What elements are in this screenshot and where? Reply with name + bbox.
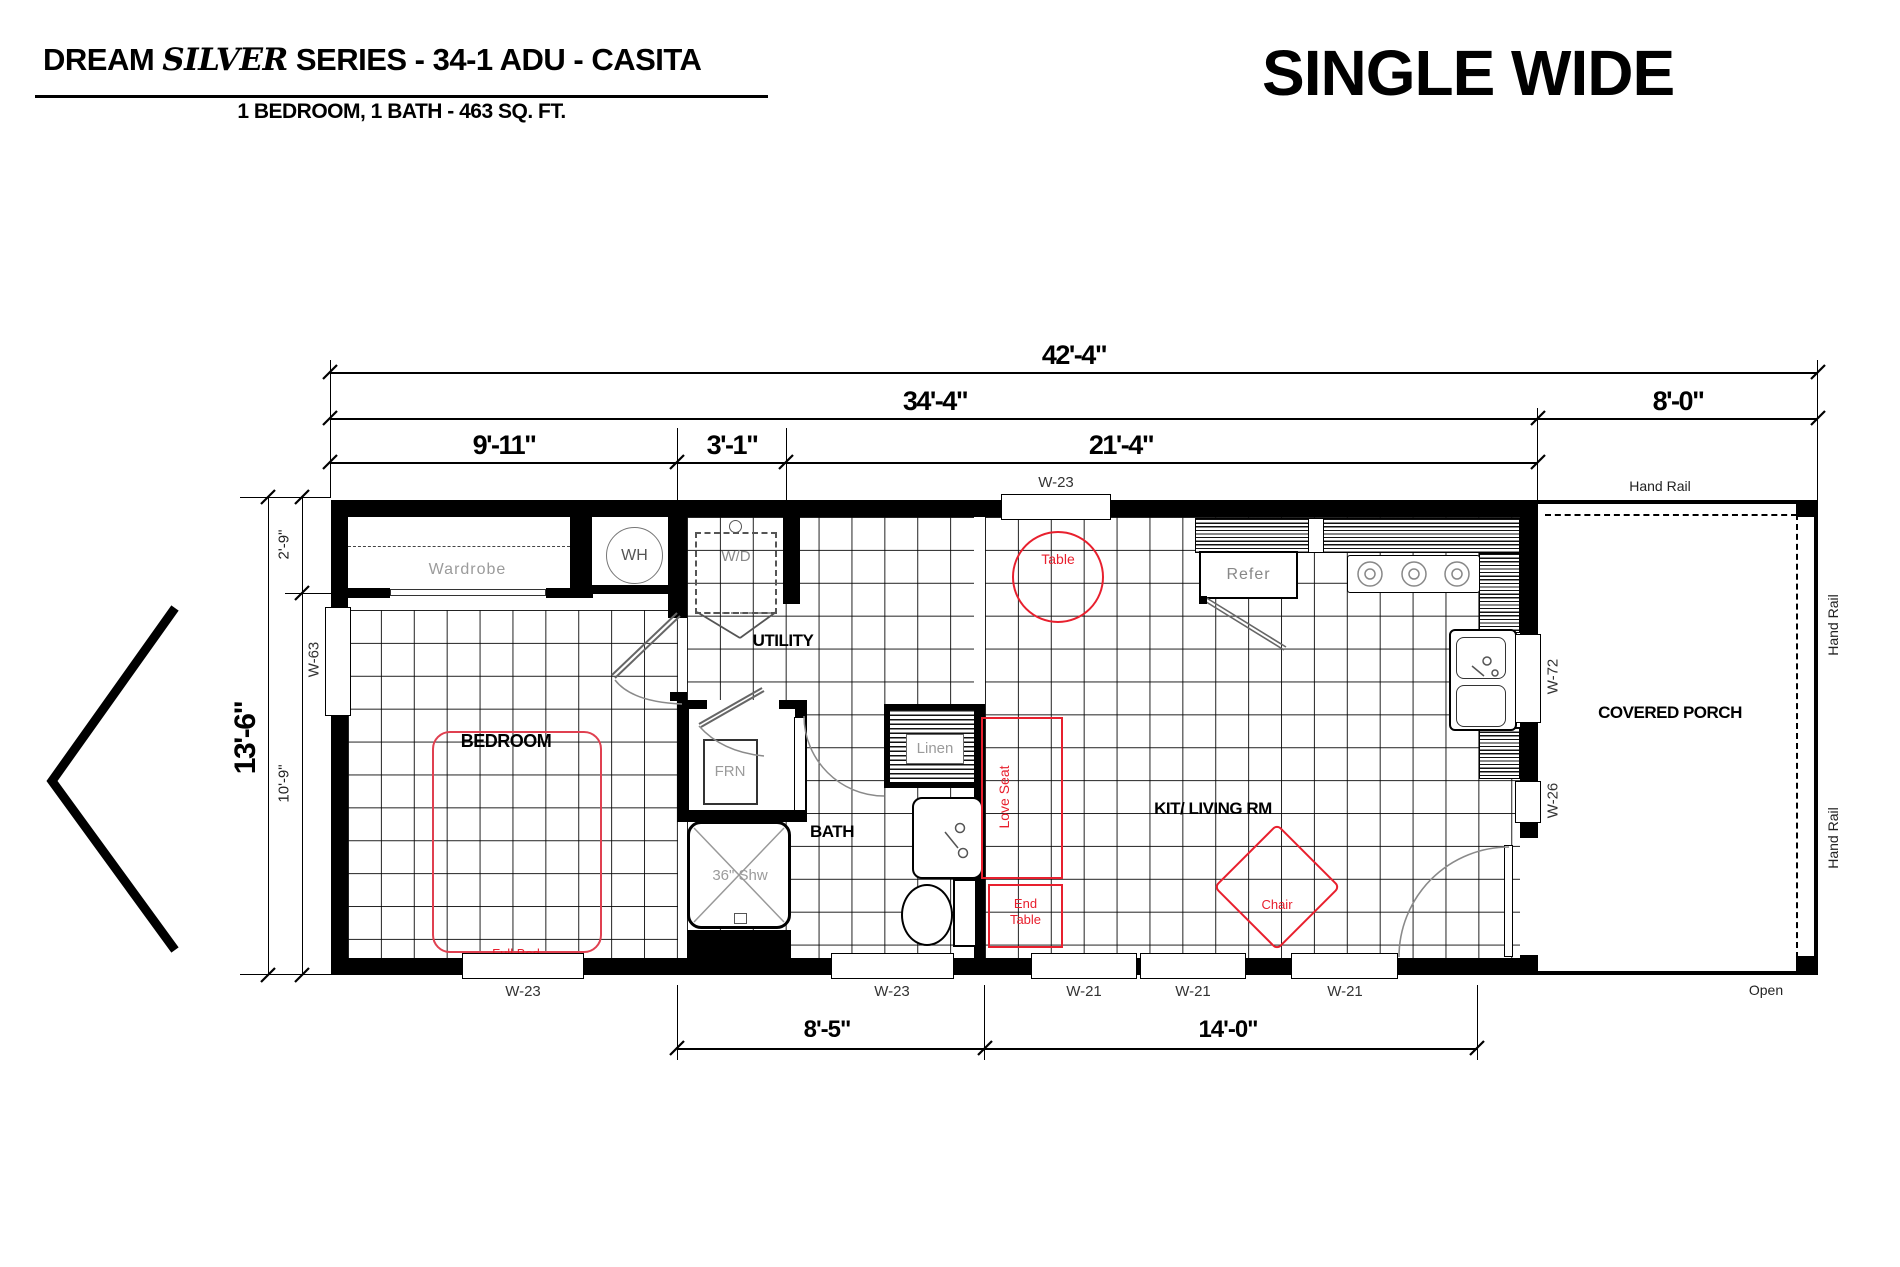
- kitchen-upper-cabinets: [1195, 518, 1520, 553]
- hand-rail-label-right-upper: Hand Rail: [1825, 545, 1841, 705]
- entry-door-leaf: [1504, 845, 1513, 957]
- wardrobe-shelf: [390, 589, 546, 596]
- floor-plan-page: { "header": { "title_part1": "DREAM ", "…: [0, 0, 1900, 1267]
- shower-label: 36" Shw: [697, 867, 783, 884]
- title-part1: DREAM: [43, 42, 162, 77]
- bottom-wall-seg5: [1244, 958, 1293, 975]
- page-title: DREAM SILVER SERIES - 34-1 ADU - CASITA: [43, 42, 701, 78]
- ext-line-left: [330, 360, 331, 497]
- bath-pocket-door: [794, 717, 806, 811]
- hand-rail-label-top: Hand Rail: [1610, 478, 1710, 494]
- window-bottom-living-3: [1291, 953, 1398, 979]
- porch-bottom-edge: [1538, 971, 1818, 975]
- home-type-label: SINGLE WIDE: [1262, 36, 1674, 110]
- toilet-bowl: [901, 884, 953, 946]
- linen-label: Linen: [906, 740, 964, 757]
- dim-living-width: 21'-4": [1046, 430, 1196, 461]
- covered-porch-label: COVERED PORCH: [1580, 703, 1760, 723]
- top-wall-left-segment: [331, 500, 1003, 517]
- window-right-living: [1515, 781, 1541, 823]
- love-seat: [981, 717, 1063, 879]
- porch-rail-dashed-top: [1545, 514, 1797, 518]
- window-right-kitchen: [1515, 634, 1541, 723]
- porch-top-edge: [1538, 500, 1818, 504]
- wh-closet-bottom-wall: [588, 585, 678, 594]
- window-label-left-bedroom: W-63: [306, 620, 323, 700]
- window-top-kitchen: [1001, 494, 1111, 520]
- right-wall-seg2: [1520, 722, 1538, 782]
- kitchen-counter-lower-right: [1479, 727, 1520, 779]
- window-bottom-living-1: [1031, 953, 1137, 979]
- end-table-label-line1: End: [993, 896, 1058, 911]
- dim-line-bath-bottom: [677, 1048, 985, 1050]
- dim-porch-width: 8'-0": [1603, 386, 1753, 417]
- kitchen-sink-basin-top: [1456, 637, 1506, 679]
- washer-dryer: [695, 532, 777, 614]
- bath-room-label: BATH: [800, 822, 864, 842]
- window-bottom-bedroom: [462, 953, 584, 979]
- ext-line-right: [1817, 360, 1818, 500]
- dim-line-overall: [330, 372, 1818, 374]
- dim-line-depth-split: [302, 497, 303, 975]
- toilet-tank: [953, 879, 977, 947]
- furnace-closet-door-opening: [707, 700, 779, 709]
- washer-dryer-vent-icon: [729, 520, 742, 533]
- furnace-label: FRN: [690, 763, 770, 780]
- utility-right-wall: [783, 517, 800, 604]
- window-label-top-kitchen: W-23: [1016, 474, 1096, 491]
- wardrobe-label: Wardrobe: [405, 561, 530, 579]
- bottom-wall-seg1: [331, 958, 464, 975]
- title-series-name: SILVER: [162, 42, 287, 78]
- bottom-wall-seg2: [582, 958, 833, 975]
- washer-dryer-label: W/D: [696, 548, 776, 565]
- wh-closet-left-wall: [570, 517, 592, 593]
- dim-main-width: 34'-4": [860, 386, 1010, 417]
- window-label-right-living: W-26: [1545, 761, 1562, 841]
- left-wall-upper: [331, 500, 348, 608]
- left-wall-lower: [331, 715, 348, 975]
- porch-rail-dashed-right: [1796, 514, 1800, 958]
- chair-label: Chair: [1247, 897, 1307, 912]
- left-direction-arrow: [52, 608, 175, 950]
- dim-overall-width: 42'-4": [999, 340, 1149, 371]
- dim-line-rooms: [330, 462, 1538, 464]
- porch-right-edge: [1814, 500, 1818, 975]
- kitchen-counter-upper-right: [1479, 553, 1520, 633]
- kitchen-cabinet-seam: [1308, 519, 1324, 552]
- utility-room-label: UTILITY: [740, 631, 826, 651]
- range-cooktop: [1347, 555, 1480, 593]
- shower-drain-icon: [734, 913, 747, 924]
- bedroom-room-label: BEDROOM: [450, 731, 562, 752]
- water-heater: WH: [606, 527, 663, 584]
- dim-line-main: [330, 418, 1538, 420]
- dim-living-bottom-width: 14'-0": [1153, 1016, 1303, 1044]
- hand-rail-label-right-lower: Hand Rail: [1825, 758, 1841, 918]
- dim-bedroom-width: 9'-11": [429, 430, 579, 461]
- dining-table-label: Table: [1022, 551, 1094, 567]
- porch-open-label: Open: [1736, 982, 1796, 998]
- wardrobe-wall-stub-left: [348, 588, 390, 598]
- kit-living-room-label: KIT/ LIVING RM: [1128, 799, 1298, 819]
- bathroom-sink: [912, 797, 983, 879]
- wardrobe-dashed-line: [348, 546, 570, 549]
- kitchen-sink-basin-bottom: [1456, 685, 1506, 727]
- right-wall-seg4: [1520, 955, 1538, 975]
- ext-line-porch-left: [1537, 408, 1538, 500]
- title-underline: [35, 95, 768, 98]
- page-subtitle: 1 BEDROOM, 1 BATH - 463 SQ. FT.: [35, 100, 768, 124]
- dim-overall-depth: 13'-6": [229, 653, 263, 823]
- window-label-right-kitchen: W-72: [1545, 637, 1562, 717]
- right-wall-seg1: [1520, 500, 1538, 635]
- bedroom-utility-wall: [668, 517, 687, 618]
- right-wall-seg3: [1520, 822, 1538, 838]
- ext-line-bottom-left-horiz: [240, 974, 331, 975]
- dim-line-porch: [1538, 418, 1818, 420]
- dim-utility-width: 3'-1": [657, 430, 807, 461]
- dim-line-depth: [268, 497, 269, 975]
- bath-bottom-wall: [687, 930, 791, 958]
- love-seat-label: Love Seat: [996, 717, 1012, 877]
- dining-table: [1012, 531, 1104, 623]
- window-bottom-bath: [831, 953, 954, 979]
- bottom-wall-seg3: [952, 958, 1033, 975]
- window-label-bottom-bath: W-23: [852, 983, 932, 1000]
- full-bed: [432, 731, 602, 953]
- porch-post-bottom-right: [1796, 956, 1818, 975]
- window-label-bottom-living-1: W-21: [1044, 983, 1124, 1000]
- dim-line-living-bottom: [985, 1048, 1477, 1050]
- title-part2: SERIES - 34-1 ADU - CASITA: [288, 42, 702, 77]
- end-table-label-line2: Table: [993, 912, 1058, 927]
- dim-bath-width: 8'-5": [752, 1016, 902, 1044]
- window-label-bottom-living-3: W-21: [1305, 983, 1385, 1000]
- window-label-bottom-living-2: W-21: [1153, 983, 1233, 1000]
- bottom-wall-seg6: [1396, 958, 1538, 975]
- dim-bedroom-depth: 10'-9": [276, 734, 293, 834]
- top-wall-right-segment: [1110, 500, 1538, 517]
- dim-closet-depth: 2'-9": [276, 495, 293, 595]
- water-heater-label: WH: [621, 547, 648, 564]
- window-left-bedroom: [325, 607, 351, 716]
- window-label-bottom-bedroom: W-23: [483, 983, 563, 1000]
- window-bottom-living-2: [1140, 953, 1246, 979]
- refrigerator-label: Refer: [1199, 566, 1298, 584]
- ext-line-living-right: [1477, 985, 1478, 1060]
